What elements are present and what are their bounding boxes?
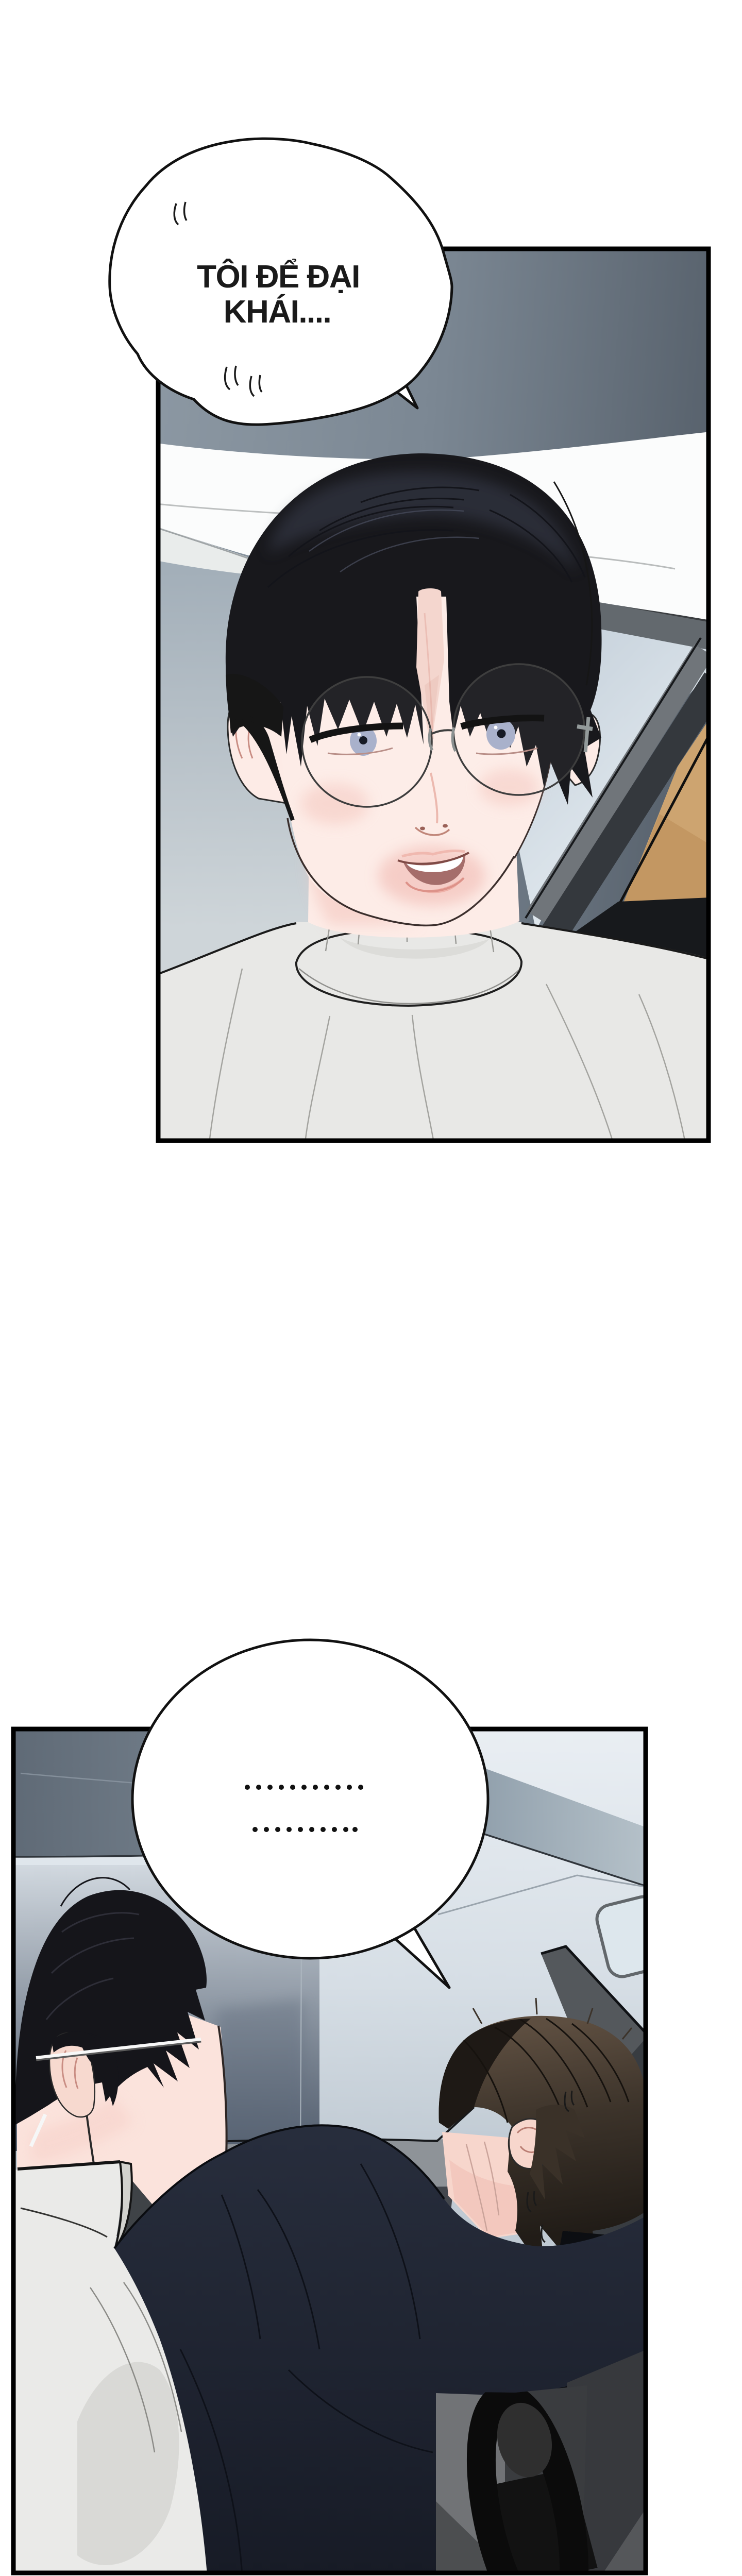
svg-text:TÔI ĐỂ ĐẠI: TÔI ĐỂ ĐẠI [197, 259, 360, 295]
svg-text:KHÁI....: KHÁI.... [224, 294, 331, 330]
